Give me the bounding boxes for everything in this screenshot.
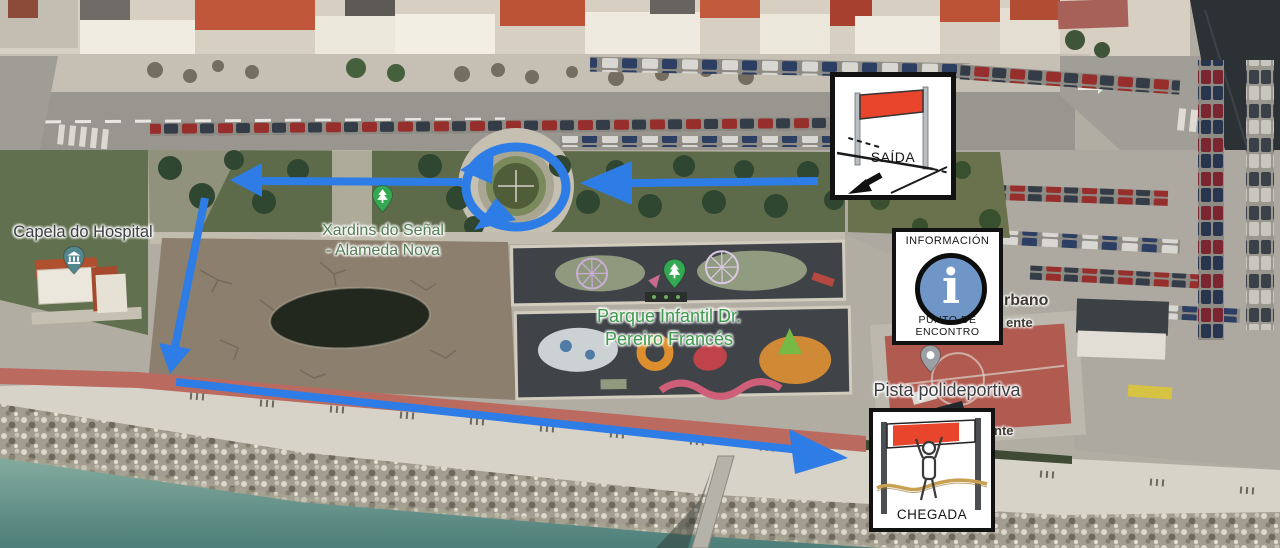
route-arrow-east-shaft (630, 181, 818, 183)
aerial-route-map: Capela do Hospital Xardins do Señal - Al… (0, 0, 1280, 548)
info-meeting-point-sign: INFORMACIÓN i PUNTO DE ENCONTRO (892, 228, 1003, 345)
finish-sign-label: CHEGADA (873, 507, 991, 522)
label-parque-infantil: Parque Infantil Dr. Pereiro Francés (583, 305, 755, 350)
finish-sign: CHEGADA (869, 408, 995, 532)
start-sign: SAÍDA (830, 72, 956, 200)
route-arrows (0, 0, 1280, 548)
meeting-point-label: PUNTO DE ENCONTRO (896, 314, 999, 338)
route-arrow-south-shaft (174, 198, 205, 352)
route-arrowhead-finish (789, 429, 848, 474)
route-arrowhead-west (230, 163, 262, 197)
generic-pin-icon (919, 344, 942, 374)
chapel-pin-icon (62, 245, 86, 276)
park-pin-icon (371, 184, 394, 214)
label-xardins-do-senal: Xardins do Señal - Alameda Nova (303, 221, 463, 261)
route-arrowhead-south (159, 343, 191, 374)
info-sign-title: INFORMACIÓN (896, 235, 999, 247)
route-arrowhead-east (580, 161, 632, 205)
park-pin-icon (662, 258, 687, 290)
route-arrow-finish-shaft (176, 382, 800, 450)
label-capela-do-hospital: Capela do Hospital (8, 222, 158, 243)
label-pista-polideportiva: Pista polideportiva (862, 379, 1032, 402)
route-arrow-west-shaft (258, 181, 462, 182)
start-sign-label: SAÍDA (835, 149, 951, 165)
start-banner-icon (835, 77, 951, 195)
